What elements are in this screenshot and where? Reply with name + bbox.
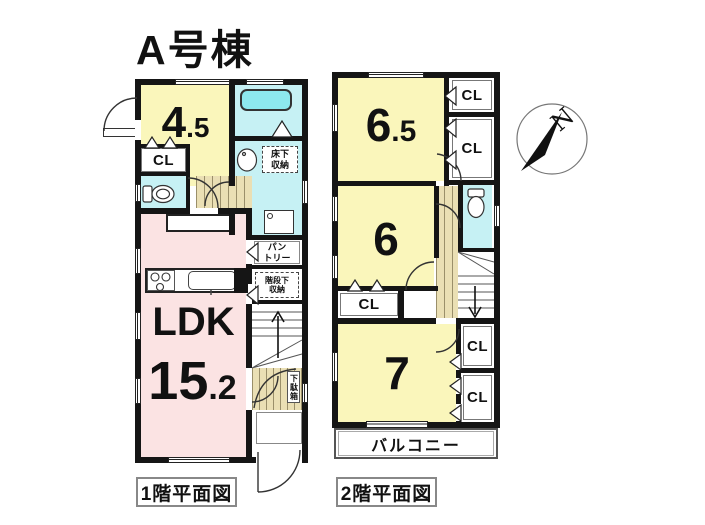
compass-needle: [521, 112, 562, 171]
closet-label: CL: [462, 87, 483, 104]
side-door-leaf: [103, 128, 137, 137]
tatami-size-main: 4: [162, 98, 186, 148]
door-opening: [456, 404, 461, 421]
floor2-caption-text: 2階平面図: [341, 479, 433, 506]
closet-label: CL: [462, 140, 483, 157]
understairs-storage-line1: 階段下: [265, 276, 289, 285]
compass-circle: [517, 104, 587, 174]
window: [168, 457, 230, 463]
wall: [458, 248, 494, 252]
wall: [444, 180, 494, 185]
ldk-size: 15.2: [133, 350, 252, 412]
balcony-door-window: [366, 421, 428, 428]
closet-label: CL: [467, 338, 488, 355]
ldk-size-main: 15: [148, 350, 208, 412]
room-6-size: 6: [338, 212, 434, 270]
room-7-label: 7: [384, 346, 410, 400]
wall: [135, 208, 187, 214]
tatami-size-frac: .5: [186, 112, 209, 144]
front-door-opening: [256, 457, 302, 463]
window: [494, 205, 500, 227]
wall: [252, 235, 302, 240]
shoe-cabinet: 下駄箱: [287, 371, 300, 403]
balcony-label-area: バルコニー: [338, 431, 494, 456]
wall: [338, 286, 438, 291]
room-6-5-size: 6.5: [338, 98, 444, 160]
window: [135, 184, 141, 202]
window: [368, 72, 424, 78]
tatami-room-size: 4.5: [141, 98, 230, 158]
room-6-5-main: 6: [366, 98, 392, 152]
pantry: パン トリー: [254, 241, 300, 264]
window: [302, 383, 308, 403]
floorplan-page: A号棟 CL 床下 収納 パン: [0, 0, 705, 525]
wall: [141, 172, 188, 176]
balcony-label: バルコニー: [371, 432, 461, 456]
wall: [229, 136, 302, 141]
wall: [398, 291, 404, 318]
wall: [458, 185, 463, 248]
window: [246, 79, 284, 85]
compass-north-label: N: [545, 102, 579, 137]
pantry-line1: パン: [268, 242, 286, 252]
window: [302, 180, 308, 204]
closet-f2-4: CL: [463, 326, 492, 366]
room-6-label: 6: [373, 212, 399, 266]
closet-f2-1: CL: [452, 80, 492, 110]
wall: [444, 112, 494, 117]
wall: [444, 78, 449, 186]
ldk-size-frac: .2: [208, 369, 236, 408]
closet-f2-2: CL: [452, 119, 492, 178]
underfloor-storage: 床下 収納: [262, 146, 298, 173]
window: [135, 248, 141, 274]
floor1-caption-text: 1階平面図: [141, 479, 233, 506]
wall: [461, 368, 494, 373]
wall: [246, 410, 252, 457]
wall: [338, 181, 436, 186]
closet-f2-3: CL: [340, 293, 398, 316]
wall: [252, 300, 302, 304]
room-6-5-frac: .5: [391, 115, 416, 149]
compass: N: [517, 102, 587, 174]
floor1-caption: 1階平面図: [136, 477, 237, 507]
closet-label: CL: [467, 389, 488, 406]
door-opening: [456, 354, 461, 370]
wall: [252, 265, 302, 269]
pantry-line2: トリー: [263, 253, 290, 263]
room-7-size: 7: [338, 346, 456, 404]
ldk-name: LDK: [141, 300, 246, 346]
underfloor-storage-line1: 床下: [271, 149, 289, 159]
understairs-storage: 階段下 収納: [255, 272, 299, 298]
floor2-caption: 2階平面図: [336, 477, 437, 507]
wall: [456, 318, 494, 324]
wall: [434, 186, 439, 258]
underfloor-storage-line2: 収納: [271, 160, 289, 170]
door-opening: [456, 378, 461, 394]
wall: [338, 318, 436, 324]
closet-f2-5: CL: [463, 375, 492, 420]
understairs-storage-line2: 収納: [269, 285, 285, 294]
window: [175, 79, 230, 85]
page-title: A号棟: [136, 16, 254, 76]
closet-label: CL: [359, 296, 380, 313]
shoe-cabinet-label: 下駄箱: [290, 374, 298, 401]
ldk-label: LDK: [152, 300, 234, 345]
